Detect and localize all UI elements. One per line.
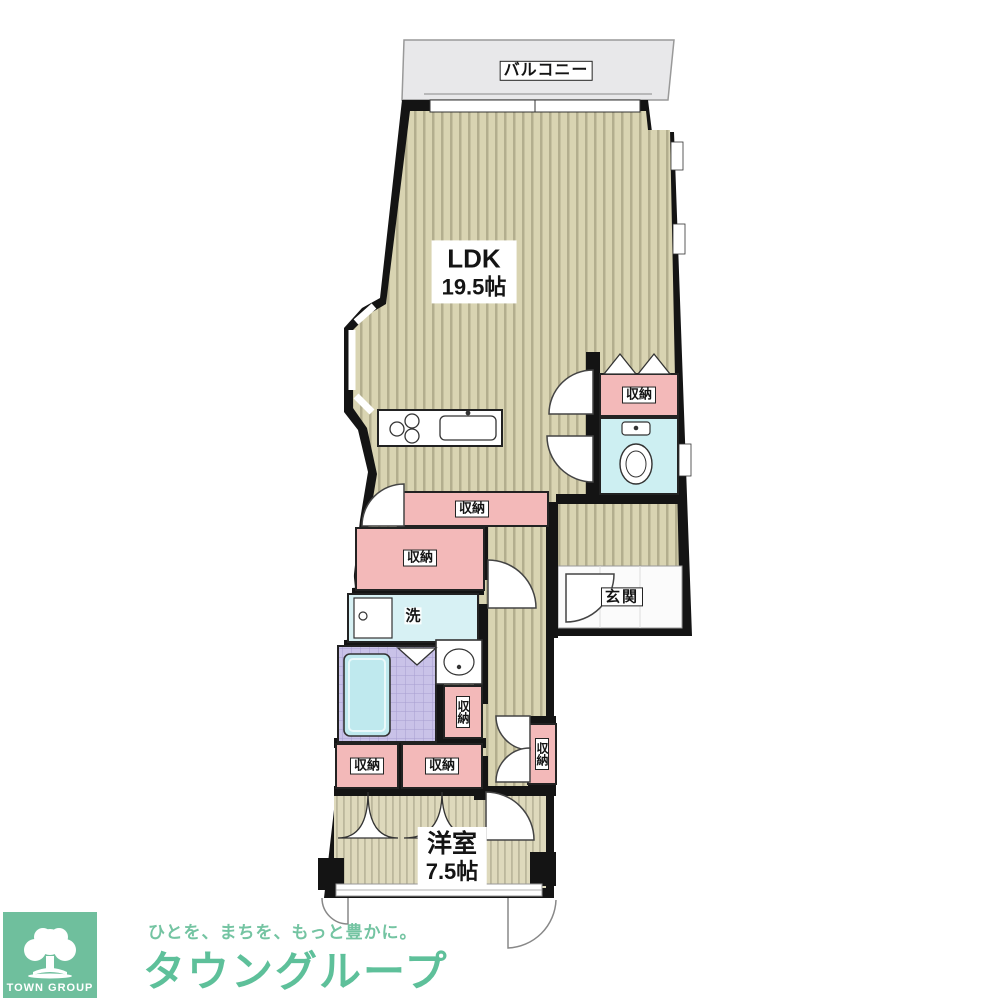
entrance-label: 玄関 [601,587,643,606]
ldk-label: LDK 19.5帖 [432,240,517,303]
toilet-icon [620,422,652,484]
brand-name: タウングループ [143,938,448,999]
balcony-label: バルコニー [500,61,593,81]
western-room-size: 7.5帖 [426,859,479,884]
floorplan-drawing [0,0,1000,1000]
logo-text: TOWN GROUP [7,982,94,994]
storage-label-vertical: 収納 [535,738,549,770]
western-room-name: 洋室 [426,830,479,859]
storage-label-vertical: 収納 [456,696,470,728]
storage-label: 収納 [350,758,384,775]
ldk-name: LDK [442,244,507,274]
kitchen-counter [378,410,502,446]
storage-label: 収納 [622,387,656,404]
toilet-room [600,418,678,494]
western-room-label: 洋室 7.5帖 [418,827,487,887]
storage-label: 収納 [455,501,489,518]
town-group-logo: TOWN GROUP [3,912,97,998]
floorplan-image: バルコニー LDK 19.5帖 収納 収納 収納 収納 収納 収納 収納 玄関 … [0,0,1000,1000]
bathtub-icon [344,654,390,736]
ldk-size: 19.5帖 [442,274,507,299]
washbasin-icon [436,640,482,684]
storage-label: 収納 [403,550,437,567]
washing-machine-icon [354,598,392,638]
tree-logo-icon: TOWN GROUP [3,912,97,998]
branding-footer: TOWN GROUP ひとを、まちを、もっと豊かに。 タウングループ [0,905,480,1000]
storage-label: 収納 [425,758,459,775]
wash-label: 洗 [404,607,421,624]
